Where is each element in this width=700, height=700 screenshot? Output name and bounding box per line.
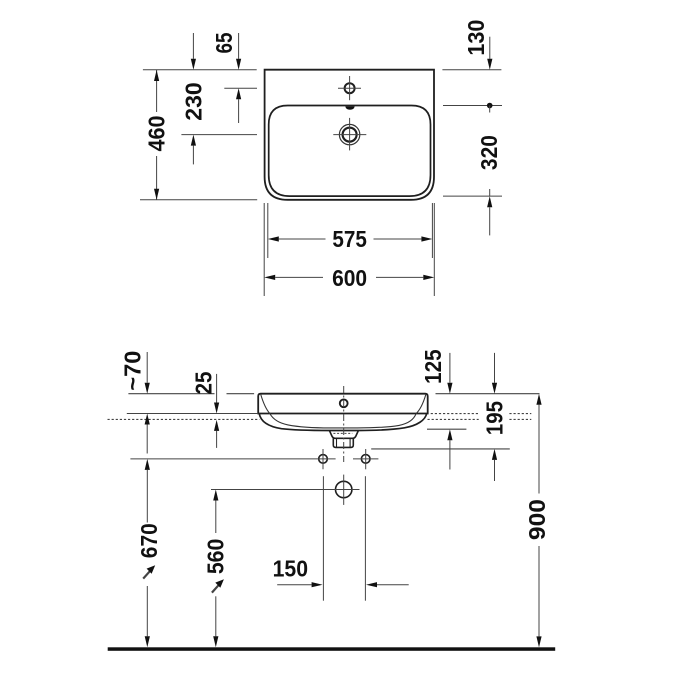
svg-text:130: 130 xyxy=(463,20,489,56)
svg-text:195: 195 xyxy=(482,401,508,435)
svg-text:150: 150 xyxy=(273,556,308,582)
svg-text:560: 560 xyxy=(203,539,229,575)
svg-text:65: 65 xyxy=(211,32,237,53)
svg-text:575: 575 xyxy=(332,226,367,252)
svg-text:25: 25 xyxy=(191,371,217,394)
svg-text:670: 670 xyxy=(136,523,162,558)
svg-text:~70: ~70 xyxy=(119,351,145,391)
svg-text:460: 460 xyxy=(144,116,170,152)
svg-text:900: 900 xyxy=(524,499,550,540)
svg-text:320: 320 xyxy=(476,135,502,170)
svg-text:125: 125 xyxy=(420,349,446,384)
svg-text:230: 230 xyxy=(181,82,207,121)
svg-text:600: 600 xyxy=(332,265,367,291)
